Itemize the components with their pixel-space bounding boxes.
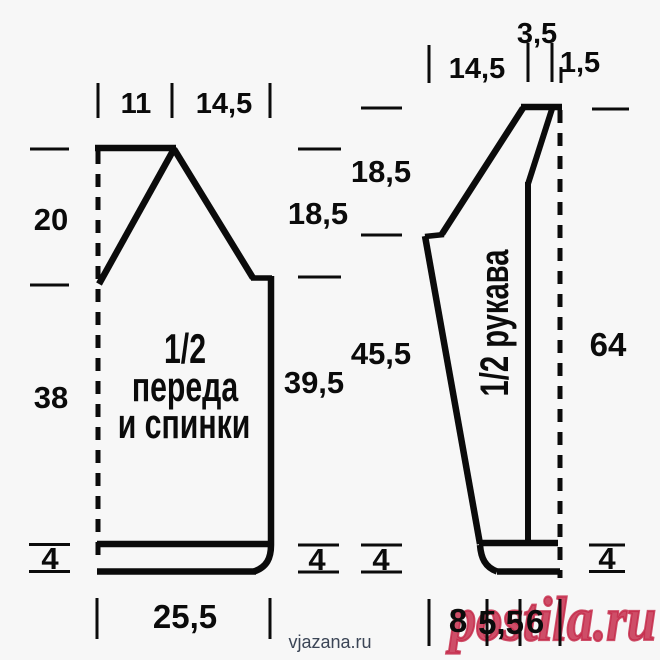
svg-text:18,5: 18,5	[351, 154, 411, 189]
svg-text:18,5: 18,5	[288, 196, 348, 231]
svg-text:64: 64	[590, 326, 627, 363]
svg-text:4: 4	[308, 542, 326, 577]
svg-text:4: 4	[41, 541, 59, 576]
svg-text:1,5: 1,5	[560, 47, 600, 79]
svg-text:и спинки: и спинки	[118, 400, 251, 447]
svg-text:5,5: 5,5	[478, 604, 524, 641]
svg-text:38: 38	[34, 380, 68, 415]
svg-text:45,5: 45,5	[351, 336, 411, 371]
svg-text:20: 20	[34, 202, 68, 237]
svg-text:4: 4	[372, 542, 390, 577]
svg-text:3,5: 3,5	[517, 18, 557, 50]
svg-text:25,5: 25,5	[153, 598, 217, 635]
svg-text:6: 6	[526, 603, 544, 640]
svg-text:11: 11	[121, 88, 152, 120]
svg-text:postila.ru: postila.ru	[445, 586, 656, 654]
svg-text:8: 8	[449, 602, 467, 639]
svg-text:4: 4	[598, 541, 616, 576]
svg-text:39,5: 39,5	[284, 365, 344, 400]
svg-text:1/2 рукава: 1/2 рукава	[473, 249, 518, 396]
svg-text:14,5: 14,5	[449, 53, 505, 85]
svg-text:14,5: 14,5	[196, 88, 252, 120]
svg-text:vjazana.ru: vjazana.ru	[288, 632, 371, 652]
